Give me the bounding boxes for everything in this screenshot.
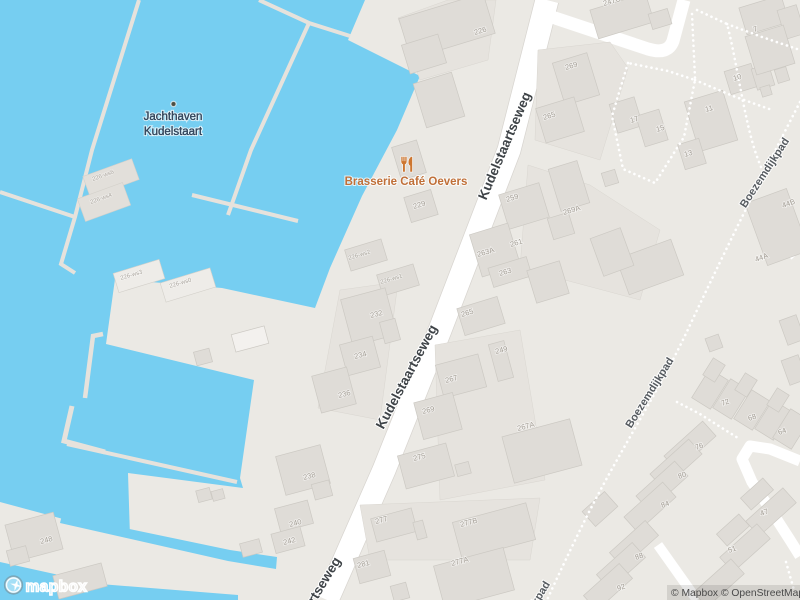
svg-text:Brasserie Café Oevers: Brasserie Café Oevers xyxy=(345,176,468,188)
svg-text:Jachthaven: Jachthaven xyxy=(144,111,203,123)
svg-text:© Mapbox © OpenStreetMap: © Mapbox © OpenStreetMap xyxy=(671,588,800,599)
svg-text:Kudelstaart: Kudelstaart xyxy=(144,126,203,138)
svg-text:mapbox: mapbox xyxy=(26,579,88,596)
